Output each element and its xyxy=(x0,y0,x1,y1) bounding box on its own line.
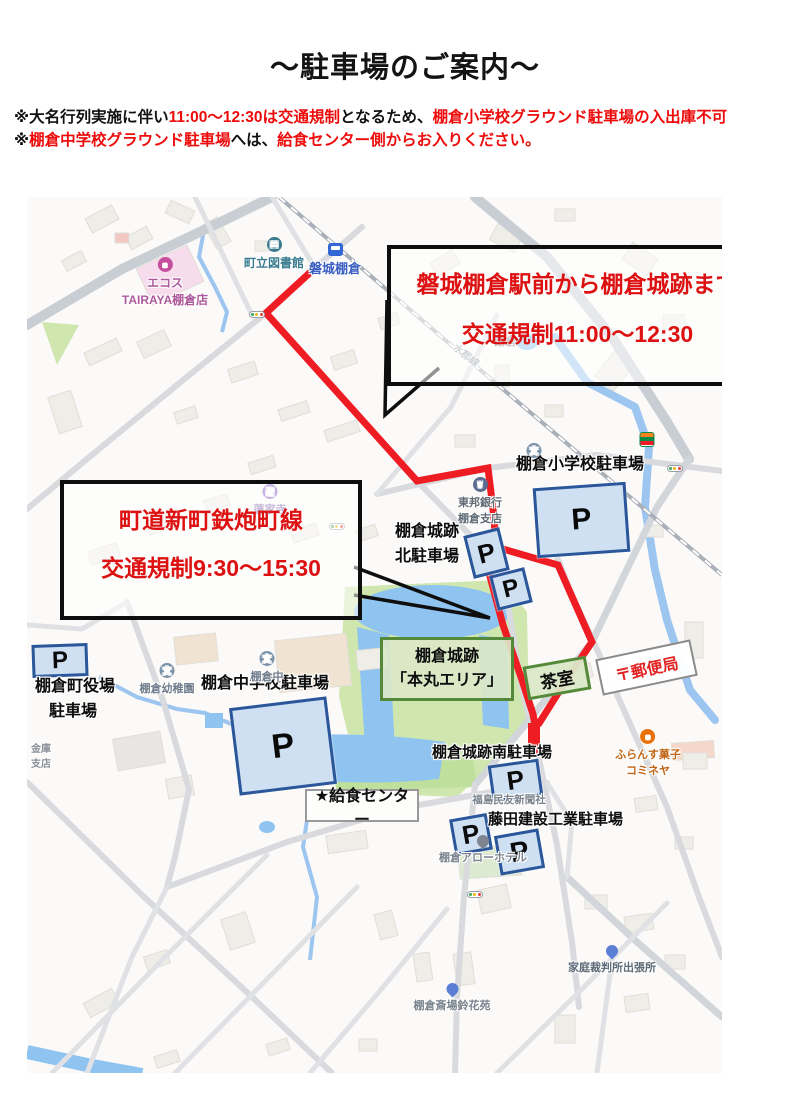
area-box-label: 棚倉城跡 xyxy=(415,645,479,669)
notice-segment: ※大名行列実施に伴い xyxy=(14,109,169,126)
school-icon: 文 xyxy=(527,443,542,458)
poi-label: エコス xyxy=(122,274,208,291)
poi-ecos: ●エコスTAIRAYA棚倉店 xyxy=(122,257,208,308)
page-title: ～駐車場のご案内～ xyxy=(0,44,810,86)
p-symbol: P xyxy=(500,573,522,604)
poi-komineya: ●ふらんす菓子コミネヤ xyxy=(615,729,681,778)
pin-icon xyxy=(444,981,461,998)
road-restriction-callout: 町道新町鉄炮町線交通規制9:30～15:30 xyxy=(60,480,362,620)
poi-label: 棚倉アローホテル xyxy=(439,849,527,865)
poi-label: 棚倉中 xyxy=(251,668,284,684)
poi-label: 家庭裁判所出張所 xyxy=(568,959,656,975)
parking-guide-map: PPPPPPPP棚倉小学校駐車場棚倉城跡北駐車場棚倉町役場駐車場棚倉中学校駐車場… xyxy=(27,197,722,1073)
cafe-icon: ● xyxy=(641,729,656,744)
parking-label-line: 駐車場 xyxy=(35,699,115,724)
callout-line: 町道新町鉄炮町線 xyxy=(64,496,358,544)
train-icon xyxy=(327,243,342,256)
notice-segment: 棚倉中学校グラウンド駐車場 xyxy=(29,132,231,149)
parking-p-box-shogakko: P xyxy=(533,482,631,558)
poi-label: 金庫 xyxy=(31,740,51,755)
poi-label: 東邦銀行 xyxy=(458,494,502,510)
poi-library: ▤町立図書館 xyxy=(244,237,304,271)
parking-label-line: 北駐車場 xyxy=(395,544,459,569)
poi-seven-eleven xyxy=(640,432,655,449)
poi-shogakko-school: 文 xyxy=(527,443,542,460)
poi-label: コミネヤ xyxy=(615,762,681,778)
seven-eleven-icon xyxy=(640,432,655,447)
poi-label: 棚倉支店 xyxy=(458,510,502,526)
parking-label-joseki-minami-parking: 棚倉城跡南駐車場 xyxy=(432,743,552,762)
parking-label-line: 棚倉町役場 xyxy=(35,674,115,699)
callout-line: 交通規制9:30～15:30 xyxy=(64,544,358,592)
area-box-label: ★給食センター xyxy=(307,782,417,830)
poi-label: 磐城棚倉 xyxy=(309,258,361,277)
notice-line: ※大名行列実施に伴い11:00～12:30は交通規制となるため、棚倉小学校グラウ… xyxy=(14,106,800,129)
p-symbol: P xyxy=(474,536,498,570)
notice-line: ※棚倉中学校グラウンド駐車場へは、給食センター側からお入りください。 xyxy=(14,129,800,152)
area-box-kyushoku: ★給食センター xyxy=(305,789,419,822)
poi-yochien: 文棚倉幼稚園 xyxy=(140,663,195,696)
parking-label-line: 棚倉城跡 xyxy=(395,519,459,544)
hotel-pin-icon xyxy=(475,833,492,850)
p-symbol: P xyxy=(269,725,296,766)
traffic-light-icon xyxy=(249,311,265,318)
library-icon: ▤ xyxy=(266,237,281,252)
poi-label: ふらんす菓子 xyxy=(615,746,681,762)
area-box-label: 茶室 xyxy=(538,663,576,694)
poi-arrow-hotel: 棚倉アローホテル xyxy=(439,835,527,865)
area-box-honmaru: 棚倉城跡「本丸エリア」 xyxy=(380,637,514,701)
p-symbol: P xyxy=(52,646,69,675)
notice-segment: 11:00～12:30は交通規制 xyxy=(169,109,340,126)
callout-line: 交通規制11:00～12:30 xyxy=(391,309,722,359)
notice-block: ※大名行列実施に伴い11:00～12:30は交通規制となるため、棚倉小学校グラウ… xyxy=(14,106,800,152)
parking-label-yakuba-parking: 棚倉町役場駐車場 xyxy=(35,674,115,724)
parking-label-fujita-parking: 藤田建設工業駐車場 xyxy=(488,810,623,829)
poi-label: 福島民友新聞社 xyxy=(472,792,546,807)
notice-segment: 棚倉小学校グラウンド駐車場の入出庫不可 xyxy=(433,109,728,126)
poi-chugaku: 文棚倉中 xyxy=(251,651,284,684)
poi-court: 家庭裁判所出張所 xyxy=(568,945,656,975)
poi-station: 磐城棚倉 xyxy=(309,243,361,277)
poi-kinko: 金庫支店 xyxy=(31,740,51,770)
poi-label: 支店 xyxy=(31,755,51,770)
bank-icon: ¥ xyxy=(473,477,488,492)
poi-saijo: 棚倉斎場鈴花苑 xyxy=(414,983,491,1013)
poi-label: TAIRAYA棚倉店 xyxy=(122,291,208,308)
school-icon: 文 xyxy=(160,663,175,678)
parking-label-line: 藤田建設工業駐車場 xyxy=(488,810,623,829)
traffic-light-icon xyxy=(467,891,483,898)
notice-segment: 給食センター側からお入りください。 xyxy=(277,132,541,149)
notice-segment: へは、 xyxy=(231,132,278,149)
poi-toho-bank: ¥東邦銀行棚倉支店 xyxy=(458,477,502,526)
parking-label-line: 棚倉城跡南駐車場 xyxy=(432,743,552,762)
p-symbol: P xyxy=(570,502,592,537)
parking-label-joseki-kita-parking: 棚倉城跡北駐車場 xyxy=(395,519,459,569)
notice-segment: ※ xyxy=(14,132,29,149)
school-icon: 文 xyxy=(260,651,275,666)
poi-label: 棚倉斎場鈴花苑 xyxy=(414,997,491,1013)
shopping-icon: ● xyxy=(158,257,173,272)
poi-label: 町立図書館 xyxy=(244,254,304,271)
callout-line: 磐城棚倉駅前から棚倉城跡まで xyxy=(391,259,722,309)
area-box-label: 「本丸エリア」 xyxy=(391,669,503,693)
poi-shimbun: 福島民友新聞社 xyxy=(472,792,546,807)
area-box-label: 〒郵便局 xyxy=(613,649,681,686)
parking-p-box-yakuba: P xyxy=(31,643,88,678)
station-restriction-callout: 磐城棚倉駅前から棚倉城跡まで交通規制11:00～12:30 xyxy=(387,245,722,386)
pin-icon xyxy=(604,943,621,960)
traffic-light-icon xyxy=(667,465,683,472)
poi-label: 棚倉幼稚園 xyxy=(140,680,195,696)
notice-segment: となるため、 xyxy=(340,109,433,126)
